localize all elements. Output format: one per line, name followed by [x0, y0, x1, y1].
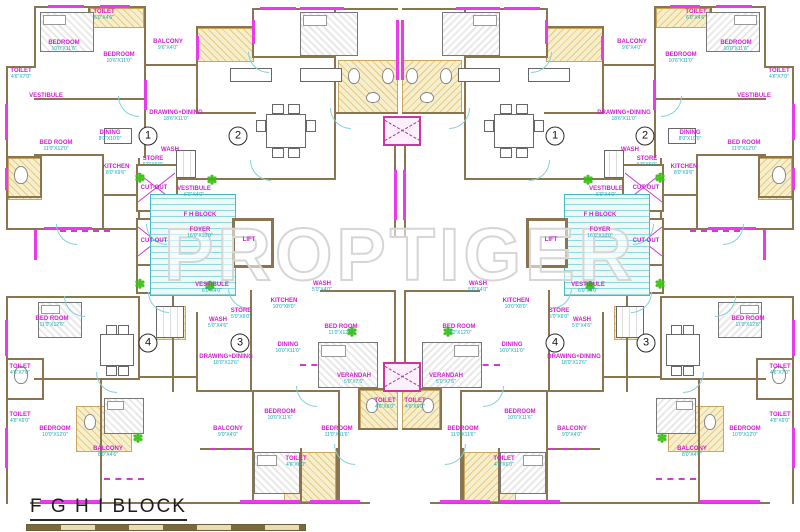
chair-furniture — [118, 325, 129, 335]
room-label: CUT-OUT — [633, 238, 660, 244]
room-label: FOYER16'0"X10'0" — [187, 227, 212, 239]
room-label: TOILET4'6"X6'0" — [9, 412, 30, 424]
bed-furniture — [656, 398, 696, 434]
room-label: DINING8'0"X10'0" — [99, 130, 122, 142]
dimension-label: 11'0"X12'0" — [443, 330, 476, 336]
wall — [544, 112, 604, 114]
wall — [758, 196, 794, 198]
room-label: TOILET4'6"X7'0" — [768, 68, 789, 80]
chair-furniture — [500, 148, 512, 158]
chair-furniture — [534, 120, 544, 132]
room-label: BED ROOM11'0"X12'0" — [728, 140, 761, 152]
staircase — [564, 194, 650, 296]
table-furniture — [100, 334, 134, 366]
dimension-label: 6'0"X4'0" — [195, 288, 229, 294]
wall — [6, 196, 42, 198]
wall — [758, 156, 760, 198]
dimension-label: 10'0"X12'0" — [729, 432, 760, 438]
dimension-label: 11'0"X12'0" — [728, 146, 761, 152]
dimension-label: 16'0"X10'0" — [587, 233, 612, 239]
room-label: STORE5'0"X6'0" — [549, 308, 570, 320]
unit-number-badge: 3 — [231, 334, 250, 353]
plant-icon: ✽ — [207, 174, 218, 187]
chair-furniture — [272, 104, 284, 114]
room-label: TOILET6'0"X4'6" — [685, 9, 706, 21]
dimension-label: 10'0"X11'0" — [499, 348, 524, 354]
wall — [654, 6, 656, 66]
chair-furniture — [306, 120, 316, 132]
room-label: BALCONY9'0"X4'0" — [213, 426, 243, 438]
window-wall — [5, 428, 8, 468]
hatched-area — [360, 390, 398, 430]
window-wall — [792, 320, 795, 356]
window-wall — [252, 20, 255, 44]
room-label: BEDROOM10'6"X11'0" — [665, 52, 696, 64]
door-swing-arc — [228, 288, 249, 309]
dimension-label: 5'0"X7'6" — [429, 379, 463, 385]
room-label: DINING10'0"X11'0" — [499, 342, 524, 354]
room-label: VERANDAH5'0"X7'6" — [429, 373, 463, 385]
dimension-label: 5'0"X6'0" — [637, 162, 658, 168]
dimension-label: 8'0"X4'6" — [677, 452, 707, 458]
dimension-label: 6'0"X4'0" — [177, 192, 211, 198]
bed-furniture — [104, 398, 144, 434]
dimension-label: 5'0"X6'0" — [143, 162, 164, 168]
wall — [6, 358, 42, 360]
toilet-fixture — [382, 68, 394, 84]
dimension-label: 18'6"X11'0" — [149, 116, 203, 122]
plant-icon: ✽ — [657, 432, 668, 445]
door-swing-arc — [449, 108, 470, 129]
window-wall — [792, 428, 795, 468]
lift-shaft — [232, 218, 274, 268]
chair-furniture — [300, 68, 342, 82]
dimension-label: 8'0"X4'6" — [93, 452, 123, 458]
dimension-label: 10'0"X11'6" — [264, 415, 295, 421]
dimension-label: 6'0"X4'6" — [93, 15, 114, 21]
plant-icon: ✽ — [135, 278, 146, 291]
dimension-label: 18'0"X12'6" — [547, 360, 601, 366]
room-label: TOILET4'6"X7'0" — [10, 68, 31, 80]
hatched-area — [196, 28, 254, 62]
window-wall — [792, 104, 795, 140]
door-swing-arc — [551, 288, 572, 309]
table-furniture — [494, 114, 534, 148]
dimension-label: 6'0"X4'0" — [589, 192, 623, 198]
window-wall — [500, 500, 560, 503]
scale-bar — [26, 524, 306, 531]
window-wall — [601, 36, 604, 60]
unit-number-badge: 2 — [636, 127, 655, 146]
unit-number-badge: 3 — [637, 334, 656, 353]
room-label: TOILET4'6"X6'0" — [374, 398, 395, 410]
dimension-label: 4'6"X6'0" — [404, 404, 425, 410]
window-wall — [240, 500, 300, 503]
staircase — [150, 194, 236, 296]
bed-furniture — [442, 12, 500, 56]
room-label: BED ROOM11'0"X12'0" — [40, 140, 73, 152]
window-wall — [456, 7, 500, 10]
dimension-label: 5'0"X4'6" — [208, 323, 228, 329]
toilet-fixture — [348, 68, 360, 84]
window-wall — [670, 5, 700, 8]
room-label: DINING10'0"X11'0" — [275, 342, 300, 354]
dimension-label: 9'0"X4'0" — [213, 432, 243, 438]
wall — [604, 64, 656, 66]
room-label: BEDROOM10'0"X12'0" — [39, 426, 70, 438]
opening-dashed — [104, 478, 144, 480]
dimension-label: 18'0"X12'6" — [199, 360, 253, 366]
room-label: BED ROOM11'0"X12'6" — [732, 316, 765, 328]
window-wall — [504, 7, 540, 10]
wall — [34, 154, 104, 156]
wall — [698, 378, 700, 502]
room-label: KITCHEN10'0"X8'0" — [271, 298, 298, 310]
opening-dashed — [210, 448, 250, 450]
dimension-label: 6'0"X4'0" — [571, 288, 605, 294]
wall — [196, 26, 254, 28]
dimension-label: 8'0"X10'0" — [99, 136, 122, 142]
room-label: WASH5'0"X4'0" — [468, 281, 488, 293]
wall — [6, 156, 42, 158]
opening-dashed — [656, 478, 696, 480]
wall — [196, 112, 256, 114]
wall — [602, 312, 604, 392]
block-title: F G H I BLOCK — [30, 496, 187, 521]
wall — [144, 64, 196, 66]
wall — [34, 378, 140, 380]
window-wall — [440, 500, 490, 503]
chair-furniture — [288, 104, 300, 114]
room-label: WASH5'0"X4'6" — [208, 317, 228, 329]
room-label: BALCONY9'6"X4'0" — [617, 39, 647, 51]
dimension-label: 5'0"X6'0" — [549, 314, 570, 320]
toilet-fixture — [772, 166, 786, 184]
lift-shaft — [526, 218, 568, 268]
room-label: TOILET4'6"X7'0" — [769, 364, 790, 376]
room-label: DINING8'0"X10'0" — [679, 130, 702, 142]
window-wall — [196, 36, 199, 60]
wall — [464, 178, 628, 180]
door-swing-arc — [56, 224, 77, 245]
plant-icon: ✽ — [655, 278, 666, 291]
window-wall — [34, 230, 37, 260]
window-wall — [310, 500, 360, 503]
wall — [660, 378, 766, 380]
toilet-fixture — [704, 414, 716, 430]
room-label: TOILET4'6"X7'0" — [9, 364, 30, 376]
room-label: KITCHEN8'0"X9'6" — [103, 164, 130, 176]
room-label: BEDROOM10'6"X11'0" — [103, 52, 134, 64]
wall — [138, 376, 198, 378]
wall — [764, 6, 766, 68]
toilet-fixture — [406, 68, 418, 84]
chair-furniture — [500, 104, 512, 114]
room-label: KITCHEN10'0"X8'0" — [503, 298, 530, 310]
room-label: F H BLOCK — [184, 212, 217, 218]
room-label: BALCONY8'0"X4'6" — [93, 446, 123, 458]
wall — [250, 290, 252, 390]
room-label: STORE5'0"X6'0" — [637, 156, 658, 168]
floor-plan-right-half: ✽✽✽✽✽✽ — [400, 0, 800, 532]
chair-furniture — [256, 120, 266, 132]
room-label: LIFT — [243, 237, 256, 243]
room-label: VESTIBULE6'0"X4'0" — [589, 186, 623, 198]
wall — [6, 398, 42, 400]
dimension-label: 4'6"X7'0" — [9, 370, 30, 376]
dimension-label: 4'6"X7'0" — [768, 74, 789, 80]
dimension-label: 16'0"X10'0" — [187, 233, 212, 239]
table-furniture — [666, 334, 700, 366]
dimension-label: 10'0"X11'6" — [720, 46, 751, 52]
window-wall — [48, 5, 84, 8]
window-wall — [5, 104, 8, 140]
chair-furniture — [671, 325, 682, 335]
wall — [758, 156, 794, 158]
room-label: STORE5'0"X6'0" — [231, 308, 252, 320]
dimension-label: 11'0"X12'6" — [732, 322, 765, 328]
door-swing-arc — [118, 96, 139, 117]
wall — [462, 448, 464, 502]
window-wall — [300, 7, 344, 10]
room-label: WASH — [161, 147, 179, 153]
wall — [358, 388, 360, 430]
dimension-label: 8'0"X9'6" — [103, 170, 130, 176]
window-wall — [716, 5, 752, 8]
door-swing-arc — [483, 386, 504, 407]
dimension-label: 10'6"X11'0" — [103, 58, 134, 64]
wall — [696, 154, 766, 156]
room-label: WASH5'0"X4'0" — [312, 281, 332, 293]
room-label: DRAWING+DINING18'0"X12'6" — [199, 354, 253, 366]
table-furniture — [266, 114, 306, 148]
dimension-label: 10'0"X11'0" — [275, 348, 300, 354]
dimension-label: 10'0"X8'0" — [271, 304, 298, 310]
dimension-label: 9'0"X4'0" — [557, 432, 587, 438]
dimension-label: 11'0"X12'6" — [36, 322, 69, 328]
toilet-fixture — [84, 414, 96, 430]
room-label: BEDROOM11'0"X11'6" — [447, 426, 478, 438]
window-wall — [545, 20, 548, 44]
chair-furniture — [458, 68, 500, 82]
chair-furniture — [288, 148, 300, 158]
dimension-label: 4'6"X7'0" — [10, 74, 31, 80]
dimension-label: 9'6"X4'0" — [153, 45, 183, 51]
room-label: VESTIBULE — [29, 93, 63, 99]
door-swing-arc — [683, 372, 704, 393]
wall — [40, 156, 42, 198]
floor-plan-canvas: ✽✽✽✽✽✽✽✽✽✽✽✽ PROPTIGER F G H I BLOCK TOI… — [0, 0, 800, 532]
door-swing-arc — [723, 224, 744, 245]
plant-icon: ✽ — [135, 172, 146, 185]
hatched-area — [402, 390, 440, 430]
wall — [758, 358, 794, 360]
dimension-label: 10'0"X8'0" — [503, 304, 530, 310]
dimension-label: 5'0"X4'0" — [468, 287, 488, 293]
chair-furniture — [272, 148, 284, 158]
dimension-label: 4'6"X6'0" — [493, 462, 514, 468]
chair-furniture — [516, 148, 528, 158]
window-wall — [394, 170, 397, 220]
dimension-label: 10'0"X11'6" — [48, 46, 79, 52]
room-label: DRAWING+DINING18'6"X11'0" — [597, 110, 651, 122]
room-label: BEDROOM10'0"X11'6" — [504, 409, 535, 421]
hatched-area — [546, 28, 604, 62]
dimension-label: 11'0"X12'0" — [325, 330, 358, 336]
bed-furniture — [300, 12, 358, 56]
room-label: CUT-OUT — [633, 185, 660, 191]
room-label: CUT-OUT — [141, 185, 168, 191]
room-label: BEDROOM10'0"X11'6" — [48, 40, 79, 52]
wall — [402, 428, 442, 430]
window-wall — [396, 20, 399, 80]
window-wall — [653, 80, 656, 110]
dimension-label: 4'6"X6'0" — [769, 418, 790, 424]
plant-icon: ✽ — [655, 172, 666, 185]
dimension-label: 4'6"X6'0" — [374, 404, 395, 410]
chair-furniture — [671, 366, 682, 376]
dimension-label: 8'0"X9'6" — [671, 170, 698, 176]
dimension-label: 18'6"X11'0" — [597, 116, 651, 122]
wall — [440, 388, 442, 430]
wall — [6, 66, 8, 230]
unit-number-badge: 1 — [546, 127, 565, 146]
dimension-label: 6'0"X4'6" — [685, 15, 706, 21]
room-label: WASH5'0"X4'6" — [572, 317, 592, 329]
dimension-label: 8'0"X10'0" — [679, 136, 702, 142]
dimension-label: 4'6"X7'0" — [769, 370, 790, 376]
dimension-label: 5'0"X7'6" — [337, 379, 371, 385]
room-label: WASH — [621, 147, 639, 153]
room-label: CUT-OUT — [141, 238, 168, 244]
dimension-label: 5'0"X4'0" — [312, 287, 332, 293]
wall — [196, 312, 198, 392]
plant-icon: ✽ — [133, 432, 144, 445]
room-label: KITCHEN8'0"X9'6" — [671, 164, 698, 176]
chair-furniture — [516, 104, 528, 114]
room-label: BALCONY8'0"X4'6" — [677, 446, 707, 458]
room-label: TOILET4'6"X6'0" — [493, 456, 514, 468]
window-wall — [700, 500, 760, 503]
wall — [100, 378, 102, 502]
room-label: BEDROOM10'0"X11'6" — [720, 40, 751, 52]
window-wall — [763, 230, 766, 260]
room-label: F H BLOCK — [584, 212, 617, 218]
wall — [144, 6, 146, 66]
dimension-label: 11'0"X11'6" — [447, 432, 478, 438]
room-label: BEDROOM10'0"X12'0" — [729, 426, 760, 438]
wall — [546, 392, 548, 502]
room-label: VESTIBULE6'0"X4'0" — [195, 282, 229, 294]
room-label: BEDROOM10'0"X11'6" — [264, 409, 295, 421]
toilet-fixture — [440, 68, 452, 84]
dimension-label: 10'0"X12'0" — [39, 432, 70, 438]
kitchen-counter — [176, 150, 196, 178]
wall — [104, 194, 140, 196]
toilet-fixture — [14, 166, 28, 184]
chair-furniture — [106, 325, 117, 335]
door-swing-arc — [631, 292, 652, 313]
room-label: FOYER16'0"X10'0" — [587, 227, 612, 239]
room-label: VESTIBULE6'0"X4'0" — [177, 186, 211, 198]
room-label: VESTIBULE6'0"X4'0" — [571, 282, 605, 294]
room-label: DRAWING+DINING18'6"X11'0" — [149, 110, 203, 122]
chair-furniture — [683, 325, 694, 335]
dimension-label: 11'0"X11'6" — [321, 432, 352, 438]
wall — [172, 178, 336, 180]
dimension-label: 4'6"X6'0" — [285, 462, 306, 468]
room-label: BALCONY9'0"X4'0" — [557, 426, 587, 438]
window-wall — [5, 320, 8, 356]
room-label: VERANDAH5'0"X7'6" — [337, 373, 371, 385]
toilet-fixture — [366, 92, 380, 103]
dimension-label: 10'6"X11'0" — [665, 58, 696, 64]
opening-dashed — [550, 448, 590, 450]
window-wall — [260, 7, 296, 10]
dimension-label: 4'6"X6'0" — [9, 418, 30, 424]
room-label: VESTIBULE — [737, 93, 771, 99]
room-label: TOILET4'6"X6'0" — [769, 412, 790, 424]
door-swing-arc — [148, 292, 169, 313]
room-label: BED ROOM11'0"X12'6" — [36, 316, 69, 328]
wall — [654, 64, 656, 158]
plant-icon: ✽ — [583, 174, 594, 187]
room-label: TOILET4'6"X6'0" — [404, 398, 425, 410]
dimension-label: 10'0"X11'6" — [504, 415, 535, 421]
window-wall — [100, 5, 130, 8]
room-label: BED ROOM11'0"X12'0" — [325, 324, 358, 336]
window-wall — [5, 168, 8, 190]
wall — [660, 194, 696, 196]
unit-number-badge: 4 — [139, 334, 158, 353]
wall — [34, 6, 36, 68]
room-label: LIFT — [545, 237, 558, 243]
window-wall — [403, 170, 406, 220]
chair-furniture — [118, 366, 129, 376]
duct-shaft-bottom — [383, 362, 421, 392]
wall — [758, 398, 794, 400]
window-wall — [401, 20, 404, 80]
wall — [660, 296, 662, 378]
room-label: STORE5'0"X6'0" — [143, 156, 164, 168]
window-wall — [792, 168, 795, 190]
unit-number-badge: 2 — [229, 127, 248, 146]
wall — [546, 26, 604, 28]
wall — [358, 428, 398, 430]
wall — [792, 66, 794, 230]
dimension-label: 5'0"X4'6" — [572, 323, 592, 329]
dimension-label: 9'6"X4'0" — [617, 45, 647, 51]
door-swing-arc — [296, 386, 317, 407]
unit-number-badge: 4 — [546, 334, 565, 353]
floor-plan-left-half: ✽✽✽✽✽✽ — [0, 0, 400, 532]
unit-number-badge: 1 — [139, 127, 158, 146]
window-wall — [144, 80, 147, 110]
room-label: BEDROOM11'0"X11'6" — [321, 426, 352, 438]
room-label: DRAWING+DINING18'0"X12'6" — [547, 354, 601, 366]
room-label: TOILET6'0"X4'6" — [93, 9, 114, 21]
kitchen-counter — [604, 150, 624, 178]
room-label: BALCONY9'6"X4'0" — [153, 39, 183, 51]
chair-furniture — [484, 120, 494, 132]
duct-shaft-top — [383, 116, 421, 146]
room-label: BED ROOM11'0"X12'0" — [443, 324, 476, 336]
room-label: TOILET4'6"X6'0" — [285, 456, 306, 468]
dimension-label: 11'0"X12'0" — [40, 146, 73, 152]
wall — [602, 376, 662, 378]
door-swing-arc — [661, 96, 682, 117]
toilet-fixture — [420, 92, 434, 103]
